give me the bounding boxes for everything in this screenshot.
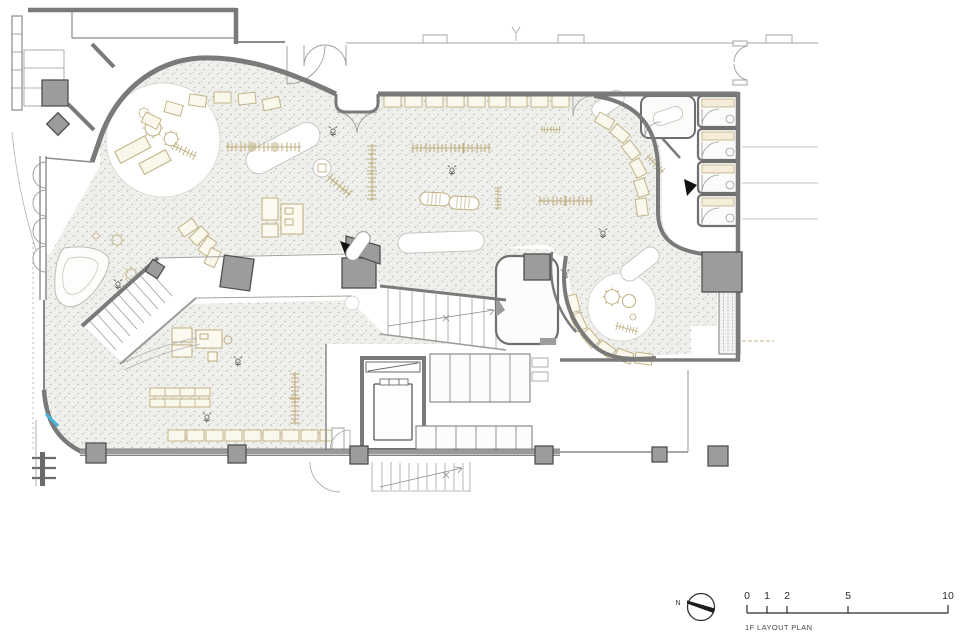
fitting-room (698, 96, 739, 127)
scale-label-0: 0 (744, 590, 750, 602)
elevator-car (374, 384, 412, 440)
top-right-door (733, 41, 747, 85)
scale-label-2: 2 (784, 590, 790, 602)
scale-bar: 0 1 2 5 10 (744, 590, 954, 613)
exterior-stair (310, 462, 470, 492)
fitting-room (698, 162, 739, 193)
north-label: N (675, 600, 680, 607)
scale-label-10: 10 (942, 590, 954, 602)
display-circle-right (588, 273, 656, 341)
floor-plan-drawing: N 0 1 2 5 10 1F LAYOUT PLAN (0, 0, 960, 639)
fitting-room (698, 129, 739, 160)
rail-symbol (32, 420, 56, 486)
fitting-room (698, 195, 739, 226)
floor-plan-page: N 0 1 2 5 10 1F LAYOUT PLAN (0, 0, 960, 639)
scale-label-1: 1 (764, 590, 770, 602)
scale-label-5: 5 (845, 590, 851, 602)
isolated-column (708, 446, 728, 466)
plan-caption: 1F LAYOUT PLAN (745, 623, 812, 632)
north-arrow: N (675, 594, 715, 621)
storage-rack-upper (430, 354, 530, 402)
